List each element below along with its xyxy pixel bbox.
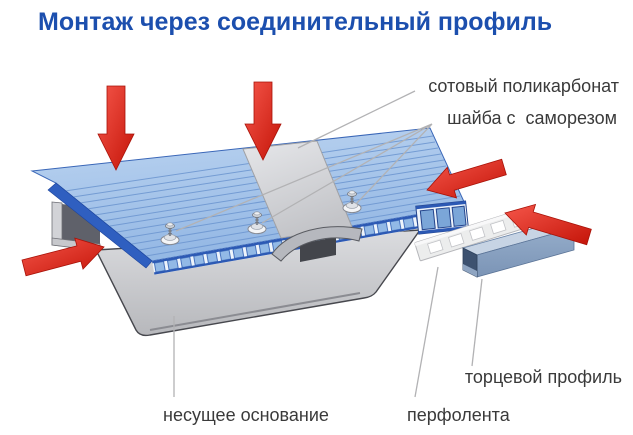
diagram-canvas: Монтаж через соединительный профиль сото… — [0, 0, 633, 435]
label-base: несущее основание — [163, 405, 329, 426]
label-perforated-tape: перфолента — [407, 405, 510, 426]
label-polycarbonate: сотовый поликарбонат — [420, 76, 619, 97]
down-arrow-icon — [98, 86, 134, 170]
label-end-profile: торцевой профиль — [428, 367, 622, 388]
page-title: Монтаж через соединительный профиль — [38, 8, 552, 37]
leader-end-profile — [472, 279, 482, 366]
label-washer-screw: шайба с саморезом — [420, 108, 617, 129]
